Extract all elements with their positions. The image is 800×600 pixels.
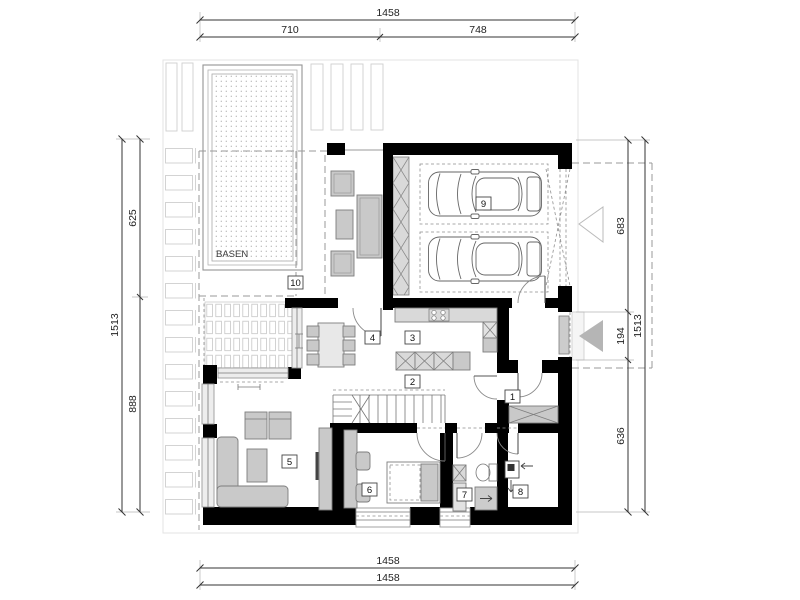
dim-bottom-first: 1458 — [376, 555, 400, 567]
room-label-10: 10 — [288, 276, 303, 289]
terrace-chair-1 — [331, 171, 354, 196]
desk — [344, 430, 357, 508]
kitchen-counter — [395, 308, 497, 322]
room-label-6: 6 — [362, 483, 377, 496]
sofa-bottom-arm — [217, 486, 288, 507]
svg-text:9: 9 — [481, 199, 486, 210]
garage — [393, 157, 570, 295]
room-label-5: 5 — [282, 455, 297, 468]
dim-bottom-second: 1458 — [376, 572, 400, 584]
dim-top-total: 1458 — [376, 7, 400, 19]
entrance — [572, 207, 603, 360]
dim-right-middle: 194 — [615, 327, 627, 345]
dim-left-lower: 888 — [127, 395, 139, 413]
floor-plan-drawing: BASEN — [0, 0, 800, 600]
shower — [475, 487, 497, 510]
garage-door-dashed — [546, 169, 570, 286]
room-label-9: 9 — [476, 197, 491, 210]
dim-right-upper: 683 — [615, 217, 627, 235]
room-label-7: 7 — [457, 488, 472, 501]
dim-top-left: 710 — [281, 24, 299, 36]
room-label-2: 2 — [405, 375, 420, 388]
window-left-upper — [202, 384, 214, 424]
toilet — [476, 464, 497, 481]
hall — [333, 390, 558, 428]
svg-text:1: 1 — [510, 392, 515, 403]
pool-label: BASEN — [216, 249, 248, 260]
deck-terrace — [205, 302, 293, 368]
svg-text:7: 7 — [462, 490, 467, 501]
pool: BASEN — [203, 65, 302, 270]
svg-text:4: 4 — [370, 333, 375, 344]
svg-text:5: 5 — [287, 457, 292, 468]
room-label-3: 3 — [405, 331, 420, 344]
car-2 — [429, 235, 542, 284]
living-room — [217, 412, 332, 510]
terrace-table — [336, 210, 353, 239]
coffee-table — [247, 449, 267, 482]
window-bedroom-south — [356, 508, 410, 527]
svg-text:10: 10 — [290, 278, 301, 289]
door-vestibule-hall — [518, 373, 542, 397]
room-label-8: 8 — [513, 485, 528, 498]
room-label-1: 1 — [505, 390, 520, 403]
entry-door — [559, 312, 570, 357]
tall-unit-fridge — [483, 322, 497, 352]
wardrobe — [509, 406, 558, 423]
window-left-lower — [202, 438, 214, 507]
dim-right-lower: 636 — [615, 427, 627, 445]
car-1 — [429, 170, 542, 219]
room-label-4: 4 — [365, 331, 380, 344]
kitchen-island — [396, 352, 470, 370]
svg-text:3: 3 — [410, 333, 415, 344]
dining — [307, 323, 355, 367]
terrace-chair-2 — [331, 251, 354, 276]
dim-left-upper: 625 — [127, 209, 139, 227]
garage-entry-arrow — [579, 207, 603, 242]
bathroom — [453, 464, 497, 511]
dining-table — [318, 323, 344, 367]
bedroom — [344, 430, 440, 508]
dim-left-total: 1513 — [109, 313, 121, 337]
dim-right-total: 1513 — [632, 314, 644, 338]
svg-text:6: 6 — [367, 485, 372, 496]
armchair-2 — [269, 412, 291, 439]
floor-plan-page: BASEN — [0, 0, 800, 600]
dim-top-right: 748 — [469, 24, 487, 36]
door-hall-kitchen — [474, 376, 497, 399]
desk-chair-1 — [356, 452, 370, 470]
stairs — [333, 390, 445, 423]
terrace-lounger — [357, 195, 382, 258]
glass-door-living-terrace — [218, 368, 288, 390]
covered-terrace — [331, 171, 382, 276]
bed-headboard — [421, 464, 438, 501]
tv-screen — [316, 452, 319, 480]
svg-text:2: 2 — [410, 377, 415, 388]
door-bathroom — [457, 433, 482, 458]
svg-text:8: 8 — [518, 487, 523, 498]
window-dining-west — [292, 308, 302, 368]
armchair-1 — [245, 412, 267, 439]
tv-cabinet — [319, 428, 332, 510]
paver-path — [165, 147, 196, 515]
